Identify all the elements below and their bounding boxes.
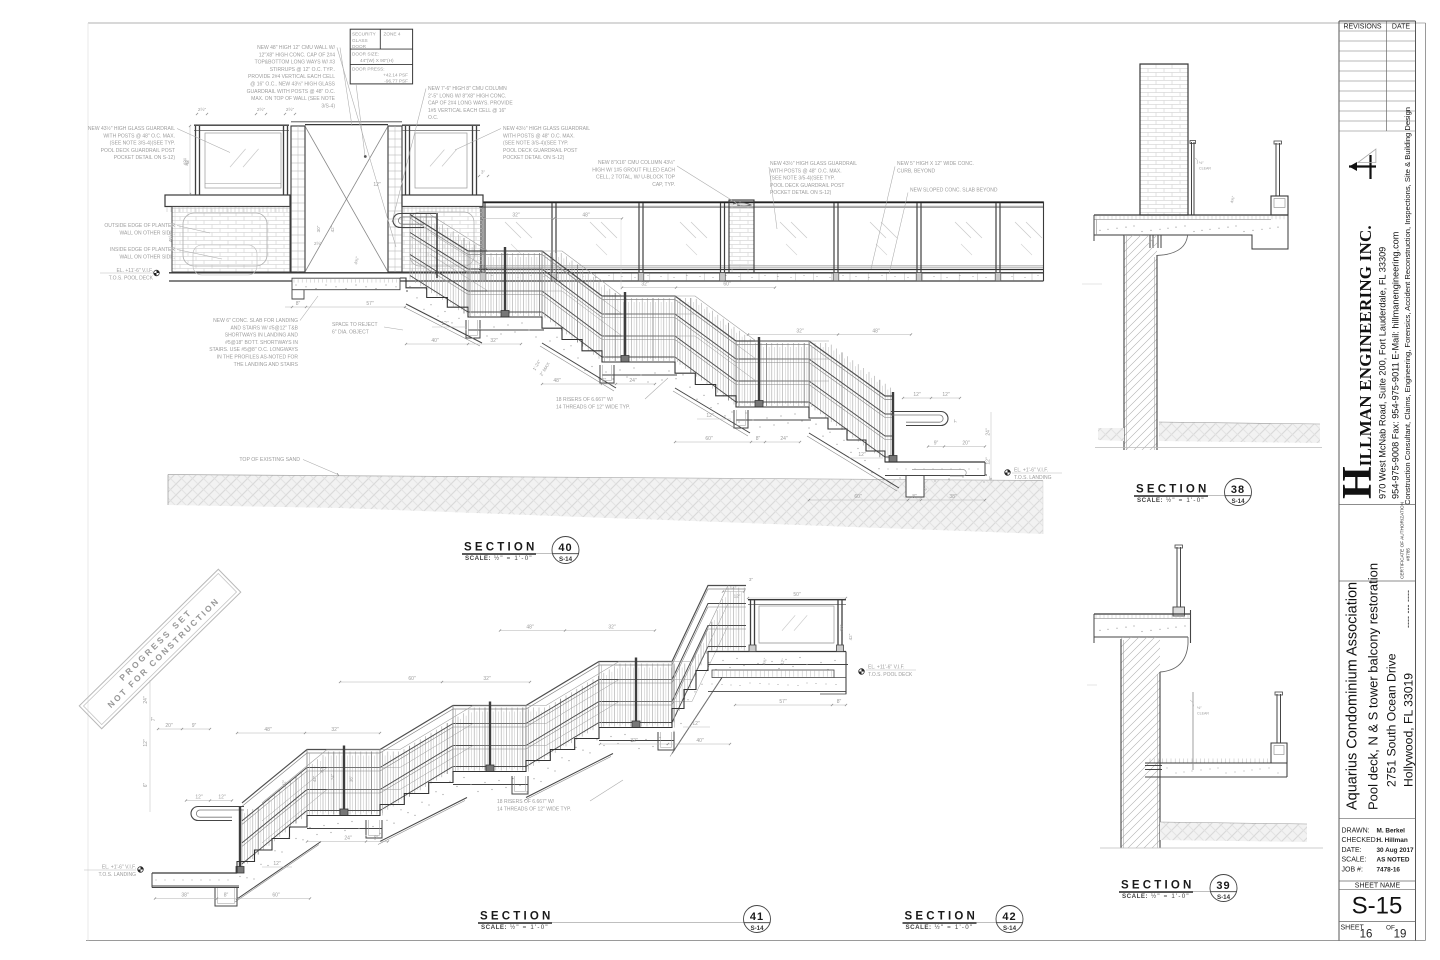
svg-text:JOB #:: JOB #: [1342,866,1363,873]
svg-text:20": 20" [962,441,970,447]
svg-text:12": 12" [441,321,449,327]
svg-text:½" = 1'-0": ½" = 1'-0" [510,924,549,931]
svg-text:NEW SLOPED CONC. SLAB BEYOND: NEW SLOPED CONC. SLAB BEYOND [910,188,998,194]
svg-text:TOP OF EXISTING SAND: TOP OF EXISTING SAND [239,457,300,463]
svg-text:32": 32" [608,625,616,631]
svg-text:POOL DECK GUARDRAIL POST: POOL DECK GUARDRAIL POST [770,183,844,189]
svg-text:½": ½" [1197,705,1202,710]
svg-text:30": 30" [319,766,324,773]
svg-text:12": 12" [218,795,226,801]
svg-text:60": 60" [272,893,280,899]
svg-text:CERTIFICATE OF AUTHORIZATION: CERTIFICATE OF AUTHORIZATION [1400,502,1405,579]
svg-text:SCALE:: SCALE: [1342,857,1367,864]
svg-text:SHEET NAME: SHEET NAME [1355,882,1401,889]
svg-text:6" DIA. OBJECT: 6" DIA. OBJECT [332,329,369,335]
svg-text:42": 42" [312,775,317,782]
svg-text:60": 60" [705,436,713,442]
svg-text:32": 32" [331,727,339,733]
svg-text:39: 39 [1216,880,1230,892]
svg-text:12": 12" [692,721,700,727]
svg-text:48": 48" [553,378,561,384]
svg-text:REVISIONS: REVISIONS [1343,23,1381,30]
svg-text:44"(W) X 90"(H): 44"(W) X 90"(H) [360,58,394,63]
svg-text:T.O.S. LANDING: T.O.S. LANDING [1014,475,1052,481]
svg-text:32": 32" [483,676,491,682]
svg-text:24": 24" [330,773,335,780]
svg-text:60": 60" [854,494,862,500]
svg-text:Pool deck, N & S tower balcony: Pool deck, N & S tower balcony restorati… [1366,563,1381,810]
svg-text:POCKET DETAIL ON S-12): POCKET DETAIL ON S-12) [770,190,832,196]
svg-text:2½": 2½" [198,106,207,113]
svg-text:(SEE NOTE 3/S-4)(SEE TYP.: (SEE NOTE 3/S-4)(SEE TYP. [110,141,175,147]
svg-text:DOOR SIZE:: DOOR SIZE: [352,52,379,57]
svg-text:38": 38" [181,893,189,899]
svg-text:½" = 1'-0": ½" = 1'-0" [935,924,974,931]
svg-text:POCKET DETAIL ON S-12): POCKET DETAIL ON S-12) [503,155,565,161]
svg-text:PROVIDE 2#4 VERTICAL EACH CELL: PROVIDE 2#4 VERTICAL EACH CELL [248,74,335,80]
svg-text:2751 South Ocean Drive: 2751 South Ocean Drive [1385,653,1399,787]
svg-text:3/S-4): 3/S-4) [321,103,335,109]
svg-text:38: 38 [1231,484,1245,496]
svg-text:SPACE TO REJECT: SPACE TO REJECT [332,322,378,328]
svg-text:8": 8" [756,436,761,442]
svg-text:EL. +1'-6" V.I.F.: EL. +1'-6" V.I.F. [1014,468,1048,474]
svg-text:Construction Consultant, Claim: Construction Consultant, Claims, Enginee… [1403,107,1412,505]
svg-text:T.O.S. POOL DECK: T.O.S. POOL DECK [109,275,154,281]
svg-text:32": 32" [630,738,638,744]
svg-text:POCKET DETAIL ON S-12): POCKET DETAIL ON S-12) [114,155,176,161]
svg-text:SECTION: SECTION [464,542,538,554]
svg-text:12": 12" [858,452,866,458]
svg-text:60": 60" [723,282,731,288]
svg-text:36": 36" [349,775,354,782]
svg-text:42": 42" [848,633,853,640]
svg-text:32": 32" [490,338,498,344]
svg-text:12"X8" HIGH CONC. CAP OF 2#4: 12"X8" HIGH CONC. CAP OF 2#4 [259,52,335,58]
svg-text:(SEE NOTE 3/S-4)(SEE TYP.: (SEE NOTE 3/S-4)(SEE TYP. [503,141,568,147]
svg-text:WALL ON OTHER SIDE.: WALL ON OTHER SIDE. [120,254,175,260]
svg-text:12": 12" [942,392,950,398]
svg-text:WITH POSTS @ 48" O.C. MAX.: WITH POSTS @ 48" O.C. MAX. [103,133,175,139]
svg-text:8": 8" [912,494,917,500]
svg-text:S-14: S-14 [1003,925,1017,932]
svg-text:6": 6" [602,378,607,384]
svg-text:9": 9" [192,723,197,729]
svg-text:SECURITY: SECURITY [352,32,377,37]
svg-text:57": 57" [366,301,374,307]
svg-text:POOL DECK GUARDRAIL POST: POOL DECK GUARDRAIL POST [503,148,577,154]
svg-text:60": 60" [408,676,416,682]
svg-text:7": 7" [151,717,157,722]
svg-text:SCALE:: SCALE: [906,924,932,931]
svg-text:8": 8" [224,893,229,899]
svg-text:CAP, TYP.: CAP, TYP. [652,182,675,188]
svg-text:30 Aug 2017: 30 Aug 2017 [1377,847,1415,854]
svg-text:(SEE NOTE 3/5-4)(SEE TYP.: (SEE NOTE 3/5-4)(SEE TYP. [770,176,835,182]
svg-text:@ 16" O.C.. NEW 43½" HIGH GLAS: @ 16" O.C.. NEW 43½" HIGH GLASS [250,81,335,88]
svg-text:NEW 8"X16" CMU COLUMN 43½": NEW 8"X16" CMU COLUMN 43½" [598,159,675,166]
svg-text:8": 8" [296,301,301,307]
svg-text:SCALE:: SCALE: [465,555,491,562]
svg-text:NEW 6" CONC. SLAB FOR LANDING: NEW 6" CONC. SLAB FOR LANDING [213,318,298,324]
svg-text:42": 42" [282,779,287,786]
svg-text:M. Berkel: M. Berkel [1377,828,1406,835]
svg-text:12": 12" [143,739,149,747]
svg-text:24": 24" [986,428,992,436]
svg-text:CHECKED:: CHECKED: [1342,837,1378,844]
svg-text:½" = 1'-0": ½" = 1'-0" [1151,893,1190,900]
svg-text:SECTION: SECTION [905,911,979,923]
svg-text:SCALE:: SCALE: [1122,893,1148,900]
svg-text:7": 7" [953,419,958,423]
svg-text:S-14: S-14 [1217,894,1231,901]
svg-text:½": ½" [1199,160,1204,165]
svg-text:18 RISERS OF 6.667" W/: 18 RISERS OF 6.667" W/ [556,397,614,403]
svg-text:NEW 43½" HIGH GLASS GUARDRAIL: NEW 43½" HIGH GLASS GUARDRAIL [770,160,857,167]
svg-text:CAP OF 2#4 LONG WAYS. PROVIDE: CAP OF 2#4 LONG WAYS. PROVIDE [428,101,513,107]
svg-text:NEW 48" HIGH 12" CMU WALL W/: NEW 48" HIGH 12" CMU WALL W/ [257,45,336,51]
svg-text:6": 6" [143,783,149,788]
svg-text:IN THE PROFILES AS-NOTED FOR: IN THE PROFILES AS-NOTED FOR [217,355,299,361]
svg-text:2½": 2½" [257,106,266,113]
svg-text:SHORTWAYS IN LANDING AND: SHORTWAYS IN LANDING AND [225,333,299,339]
svg-text:STAIRS. USE #5@8" O.C. LONGWAY: STAIRS. USE #5@8" O.C. LONGWAYS [209,347,298,353]
svg-text:32": 32" [512,213,520,219]
svg-text:CURB, BEYOND: CURB, BEYOND [897,168,935,174]
svg-text:40": 40" [431,338,439,344]
svg-text:14 THREADS OF 12" WIDE TYP.: 14 THREADS OF 12" WIDE TYP. [497,806,571,812]
svg-text:24": 24" [143,696,149,704]
svg-text:40": 40" [696,738,704,744]
svg-text:24": 24" [344,836,352,842]
svg-text:#8785: #8785 [1406,548,1411,561]
svg-text:Hollywood, FL 33019: Hollywood, FL 33019 [1402,673,1416,787]
svg-text:16: 16 [1360,929,1373,941]
svg-text:970 West McNab Road, Suite 200: 970 West McNab Road, Suite 200, Fort Lau… [1378,247,1388,499]
svg-text:42": 42" [330,225,335,232]
svg-text:18 RISERS OF 6.667" W/: 18 RISERS OF 6.667" W/ [497,799,555,805]
svg-text:TOP&BOTTOM LONG WAYS W/ #3: TOP&BOTTOM LONG WAYS W/ #3 [255,60,336,66]
svg-text:S-15: S-15 [1352,893,1403,920]
svg-text:3": 3" [481,170,486,175]
svg-text:32": 32" [796,329,804,335]
svg-text:9": 9" [934,441,939,447]
svg-text:MAX. ON TOP OF WALL (SEE NOTE: MAX. ON TOP OF WALL (SEE NOTE [251,96,335,102]
svg-text:12": 12" [986,457,992,465]
svg-text:DATE:: DATE: [1342,847,1362,854]
svg-text:SECTION: SECTION [1121,880,1195,892]
svg-text:½" = 1'-0": ½" = 1'-0" [494,555,533,562]
svg-text:GLASS: GLASS [352,38,368,43]
svg-text:8": 8" [374,836,379,842]
svg-text:WALL ON OTHER SIDE.: WALL ON OTHER SIDE. [120,230,175,236]
svg-text:EL. +1'-6" V.I.F.: EL. +1'-6" V.I.F. [102,865,136,871]
svg-text:T.O.S. POOL DECK: T.O.S. POOL DECK [868,672,913,678]
svg-text:40: 40 [558,542,572,554]
svg-text:30": 30" [839,624,844,631]
svg-text:INSIDE EDGE OF PLANTER: INSIDE EDGE OF PLANTER [110,247,175,253]
svg-text:POOL DECK GUARDRAIL POST: POOL DECK GUARDRAIL POST [101,148,175,154]
svg-text:H. Hillman: H. Hillman [1377,837,1408,844]
svg-text:57": 57" [779,699,787,705]
svg-text:6": 6" [988,476,993,480]
svg-text:NEW 43½" HIGH GLASS GUARDRAIL: NEW 43½" HIGH GLASS GUARDRAIL [88,125,175,132]
svg-text:48": 48" [526,625,534,631]
svg-text:CLEAR: CLEAR [1197,712,1209,716]
svg-text:THE LANDING AND STAIRS: THE LANDING AND STAIRS [234,362,299,368]
svg-text:12": 12" [195,795,203,801]
svg-text:41: 41 [750,911,764,923]
svg-text:12": 12" [734,594,741,599]
svg-text:WITH POSTS @ 48" O.C. MAX.: WITH POSTS @ 48" O.C. MAX. [503,133,575,139]
svg-text:42: 42 [1002,911,1016,923]
svg-text:CELL, 2 TOTAL, W/ U-BLOCK TOP: CELL, 2 TOTAL, W/ U-BLOCK TOP [596,175,676,181]
svg-text:S-14: S-14 [1231,498,1245,505]
svg-text:DOOR PRESS:: DOOR PRESS: [352,67,385,72]
svg-text:12": 12" [273,861,281,867]
svg-text:AS NOTED: AS NOTED [1377,857,1410,864]
svg-text:DOOR: DOOR [352,44,367,49]
svg-text:-96.77 PSF: -96.77 PSF [384,79,408,84]
svg-text:19: 19 [1394,929,1407,941]
svg-text:48": 48" [582,213,590,219]
svg-text:S-14: S-14 [750,925,764,932]
svg-text:8": 8" [837,699,842,705]
svg-text:NEW 43½" HIGH GLASS GUARDRAIL: NEW 43½" HIGH GLASS GUARDRAIL [503,125,590,132]
svg-text:954-975-9008 Fax: 954-975-9: 954-975-9008 Fax: 954-975-9011 E-Mail: h… [1391,231,1401,499]
svg-text:SCALE:: SCALE: [481,924,507,931]
svg-text:12": 12" [373,182,381,188]
svg-text:50": 50" [793,592,801,598]
svg-text:3": 3" [749,577,754,582]
svg-text:S-14: S-14 [559,556,573,563]
svg-text:38": 38" [949,494,957,500]
svg-text:EL. +11'-6" V.I.F.: EL. +11'-6" V.I.F. [868,665,905,671]
svg-text:AND STAIRS W/ #5@12" T&B: AND STAIRS W/ #5@12" T&B [230,325,298,331]
svg-text:NEW 7'-6" HIGH 8" CMU COLUMN: NEW 7'-6" HIGH 8" CMU COLUMN [428,86,507,92]
svg-text:DATE: DATE [1392,23,1410,30]
svg-text:+42.14 PSF: +42.14 PSF [383,73,408,78]
svg-text:48": 48" [872,329,880,335]
svg-text:7478-16: 7478-16 [1377,866,1401,873]
svg-text:T.O.S. LANDING: T.O.S. LANDING [98,872,136,878]
svg-text:NEW 5" HIGH X 12" WIDE CONC.: NEW 5" HIGH X 12" WIDE CONC. [897,161,974,167]
svg-text:DRAWN:: DRAWN: [1342,828,1370,835]
svg-text:42": 42" [185,158,191,166]
svg-text:1#5 VERTICAL EACH CELL @ 16": 1#5 VERTICAL EACH CELL @ 16" [428,108,506,114]
svg-text:SECTION: SECTION [480,911,554,923]
svg-text:HIGH W/ 1#5 GROUT FILLED EACH: HIGH W/ 1#5 GROUT FILLED EACH [592,167,675,173]
svg-text:48": 48" [264,727,272,733]
svg-text:32": 32" [641,282,649,288]
svg-text:½" = 1'-0": ½" = 1'-0" [1166,497,1205,504]
svg-text:---- --- ----: ---- --- ---- [1403,590,1413,628]
svg-text:OUTSIDE EDGE OF PLANTER: OUTSIDE EDGE OF PLANTER [104,223,175,229]
svg-text:30": 30" [316,225,321,232]
svg-text:14 THREADS OF 12" WIDE TYP.: 14 THREADS OF 12" WIDE TYP. [556,404,630,410]
svg-text:#5@18" BOTT. SHORTWAYS IN: #5@18" BOTT. SHORTWAYS IN [225,340,298,346]
svg-text:WITH POSTS @ 48" O.C. MAX.: WITH POSTS @ 48" O.C. MAX. [770,168,842,174]
svg-text:46½": 46½" [167,231,173,242]
svg-text:CLEAR: CLEAR [1199,167,1211,171]
svg-text:SECTION: SECTION [1136,484,1210,496]
svg-text:ZONE 4: ZONE 4 [384,32,401,37]
svg-text:STIRRUPS @ 12" O.C. TYP..: STIRRUPS @ 12" O.C. TYP.. [270,67,335,73]
svg-text:2'-5" LONG W/ 8"X8" HIGH CONC.: 2'-5" LONG W/ 8"X8" HIGH CONC. [428,93,506,99]
svg-text:GUARDRAIL WITH POSTS @ 48" O.C: GUARDRAIL WITH POSTS @ 48" O.C. [247,89,335,95]
svg-text:20": 20" [165,723,173,729]
svg-text:12": 12" [706,413,714,419]
svg-text:2½": 2½" [314,240,322,246]
svg-text:24": 24" [780,436,788,442]
svg-text:24": 24" [629,378,637,384]
svg-text:O.C.: O.C. [428,115,438,121]
svg-text:14": 14" [730,586,737,591]
svg-text:Aquarius Condominium Associati: Aquarius Condominium Association [1345,582,1361,810]
svg-text:12": 12" [913,392,921,398]
svg-text:SCALE:: SCALE: [1137,497,1163,504]
svg-text:2½": 2½" [286,106,295,113]
